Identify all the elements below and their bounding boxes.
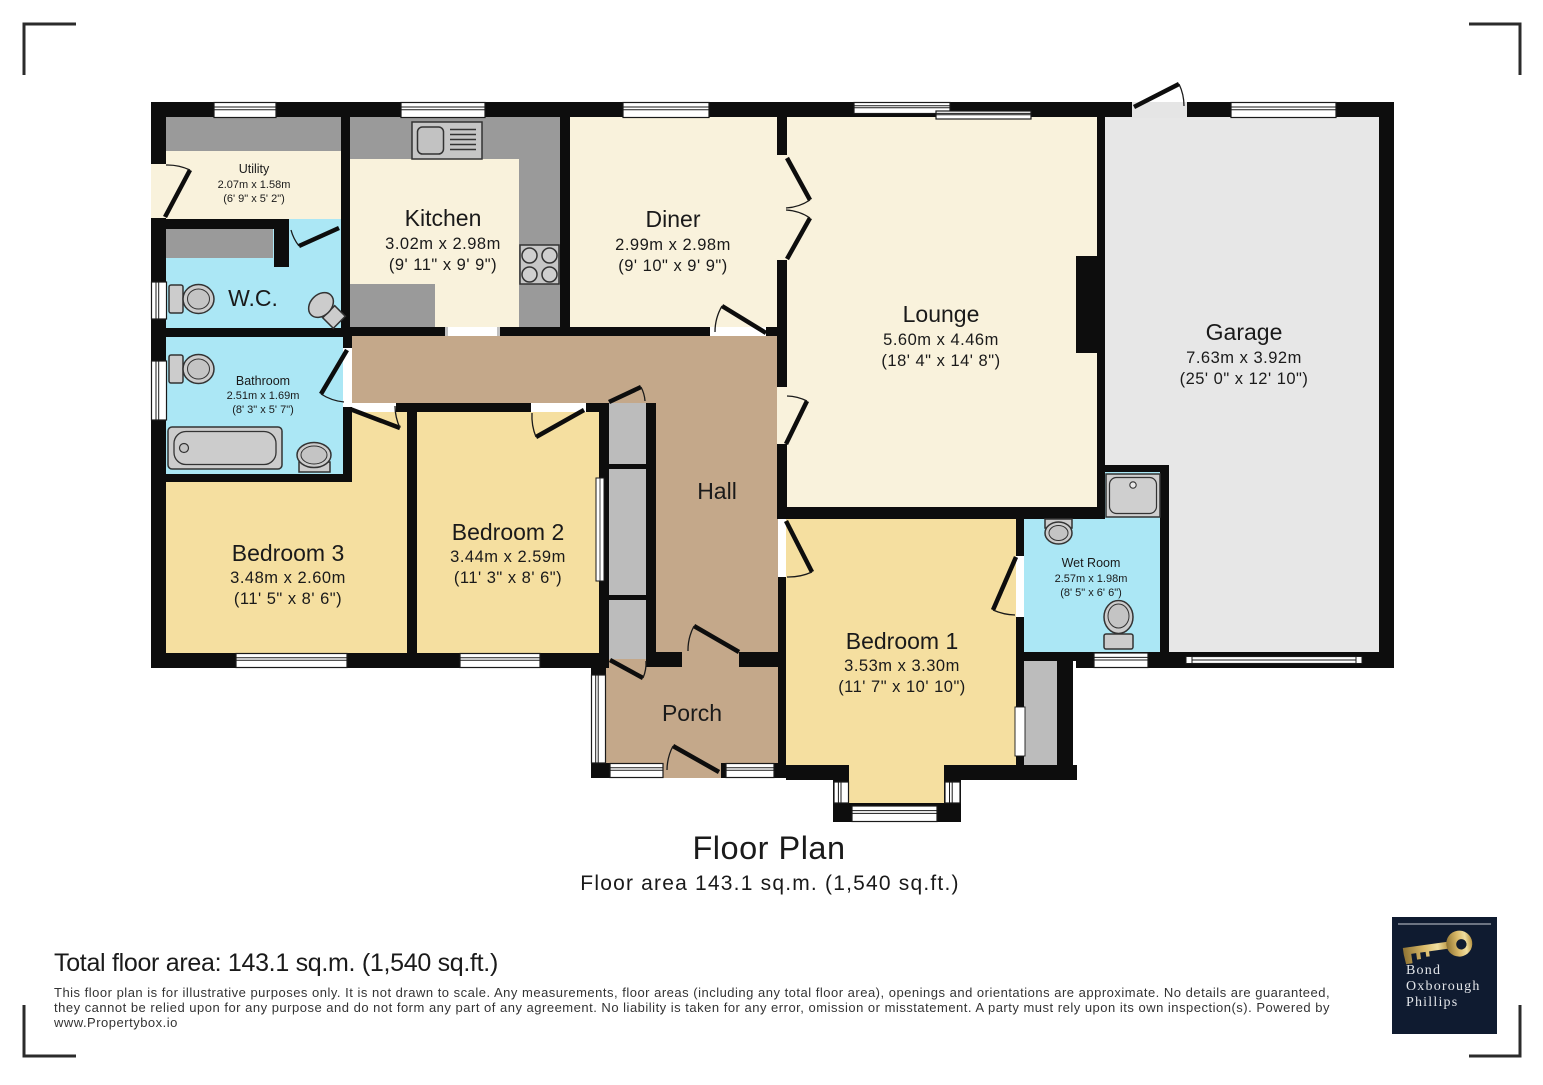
svg-text:Bathroom: Bathroom	[236, 374, 290, 388]
svg-text:Porch: Porch	[662, 700, 722, 726]
svg-text:(18' 4" x 14' 8"): (18' 4" x 14' 8")	[881, 352, 1000, 370]
svg-text:they cannot be relied upon for: they cannot be relied upon for any purpo…	[54, 1000, 1330, 1015]
svg-text:2.99m x 2.98m: 2.99m x 2.98m	[615, 236, 731, 254]
svg-text:(11' 5" x 8' 6"): (11' 5" x 8' 6")	[234, 590, 342, 608]
svg-text:Garage: Garage	[1206, 319, 1283, 345]
svg-text:7.63m x 3.92m: 7.63m x 3.92m	[1186, 349, 1302, 367]
svg-text:Hall: Hall	[697, 478, 737, 504]
svg-text:3.53m x 3.30m: 3.53m x 3.30m	[844, 657, 960, 675]
svg-text:(9' 11" x 9' 9"): (9' 11" x 9' 9")	[389, 256, 497, 274]
svg-text:Kitchen: Kitchen	[405, 205, 482, 231]
svg-text:(6' 9" x 5' 2"): (6' 9" x 5' 2")	[223, 193, 285, 205]
svg-text:(11' 3" x 8' 6"): (11' 3" x 8' 6")	[454, 569, 562, 587]
svg-text:3.48m x 2.60m: 3.48m x 2.60m	[230, 569, 346, 587]
svg-text:W.C.: W.C.	[228, 285, 278, 311]
svg-text:2.57m x 1.98m: 2.57m x 1.98m	[1055, 573, 1128, 585]
svg-text:Phillips: Phillips	[1406, 995, 1458, 1010]
svg-text:Floor area 143.1 sq.m. (1,540: Floor area 143.1 sq.m. (1,540 sq.ft.)	[580, 872, 959, 895]
svg-text:Bond: Bond	[1406, 963, 1441, 978]
svg-text:3.02m x 2.98m: 3.02m x 2.98m	[385, 235, 501, 253]
svg-text:(8' 3" x 5' 7"): (8' 3" x 5' 7")	[232, 404, 294, 416]
svg-text:Oxborough: Oxborough	[1406, 979, 1481, 994]
svg-text:(25' 0" x 12' 10"): (25' 0" x 12' 10")	[1180, 370, 1309, 388]
svg-text:www.Propertybox.io: www.Propertybox.io	[53, 1015, 178, 1030]
svg-text:Lounge: Lounge	[903, 301, 980, 327]
svg-text:Bedroom 3: Bedroom 3	[232, 540, 345, 566]
svg-text:(8' 5" x 6' 6"): (8' 5" x 6' 6")	[1060, 587, 1122, 599]
svg-text:Total floor area: 143.1 sq.m.: Total floor area: 143.1 sq.m. (1,540 sq.…	[54, 949, 498, 977]
svg-text:Floor Plan: Floor Plan	[692, 830, 845, 866]
svg-text:2.51m x 1.69m: 2.51m x 1.69m	[227, 390, 300, 402]
svg-text:Bedroom 1: Bedroom 1	[846, 628, 959, 654]
svg-text:Diner: Diner	[646, 206, 701, 232]
svg-text:Wet Room: Wet Room	[1062, 556, 1121, 570]
svg-text:(11' 7" x 10' 10"): (11' 7" x 10' 10")	[838, 678, 966, 696]
svg-text:2.07m x 1.58m: 2.07m x 1.58m	[218, 179, 291, 191]
svg-text:5.60m x 4.46m: 5.60m x 4.46m	[883, 331, 999, 349]
svg-text:This floor plan is for illustr: This floor plan is for illustrative purp…	[54, 985, 1330, 1000]
svg-text:3.44m x 2.59m: 3.44m x 2.59m	[450, 548, 566, 566]
svg-text:Bedroom 2: Bedroom 2	[452, 519, 565, 545]
svg-text:Utility: Utility	[239, 162, 270, 176]
svg-text:(9' 10" x 9' 9"): (9' 10" x 9' 9")	[618, 257, 727, 275]
